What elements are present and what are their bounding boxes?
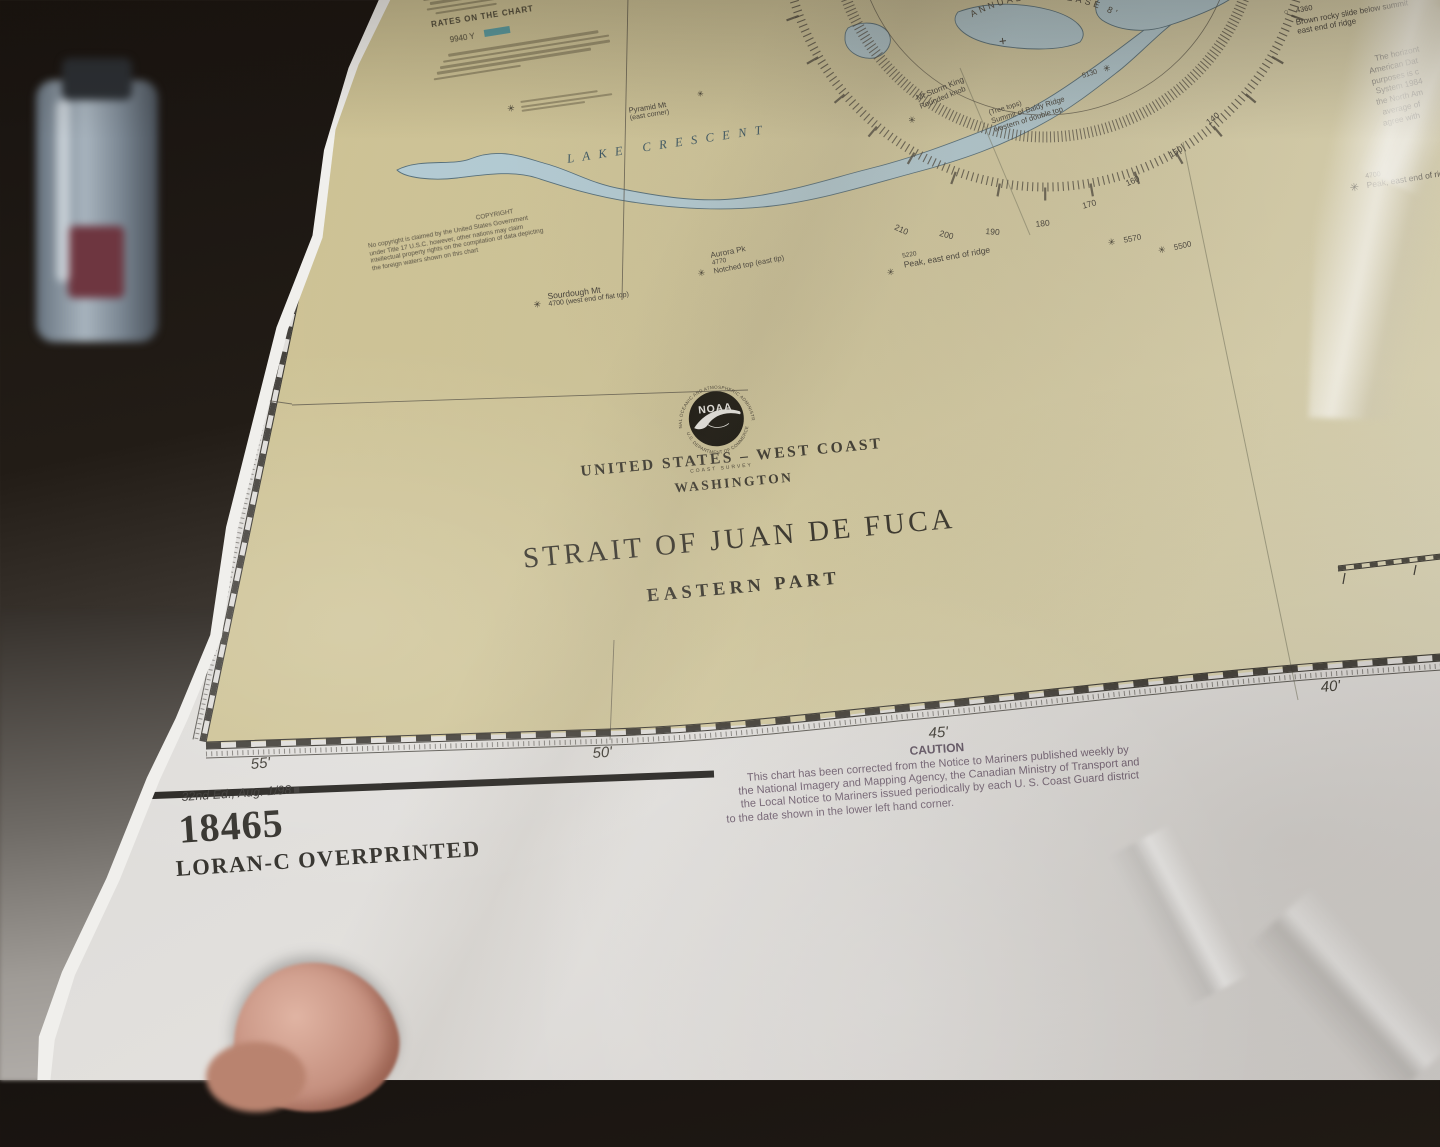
- loran-lattice-line-2: [1183, 142, 1298, 700]
- open-peak-icon: ○: [1283, 7, 1289, 17]
- compass-number: 180: [1035, 218, 1050, 229]
- peak-icon: ✳: [507, 103, 516, 115]
- meridian-50-lower: [610, 640, 614, 740]
- peak-icon: ✳: [1157, 244, 1167, 255]
- bottle-label-red: [68, 226, 124, 298]
- compass-number: 190: [985, 226, 1000, 237]
- peak-elevation: 4360: [1295, 3, 1313, 15]
- peak-icon: ✳: [533, 299, 542, 311]
- lon-label-40: 40': [1320, 677, 1341, 696]
- chart-paper: ANNUAL DECREASE 8' LA: [0, 0, 1440, 1080]
- scale-frag-stub2: [1414, 565, 1416, 575]
- left-neatline-inner2: [200, 0, 356, 741]
- heavy-outer-border: [86, 774, 714, 798]
- bottom-neatline-checks: [206, 658, 1440, 746]
- peak-icon: ✳: [697, 267, 707, 279]
- right-scale-fragment: [1338, 554, 1440, 584]
- photo-of-nautical-chart: { "chart": { "number": "18465", "overpri…: [0, 0, 1440, 1080]
- scale-frag-stub1: [1343, 573, 1345, 584]
- bottle-body: [36, 80, 158, 342]
- pond-shape: [845, 23, 890, 58]
- legend-rate-color-chip: [483, 26, 510, 37]
- edition-corner-mark: ■: [293, 784, 300, 796]
- lon-label-50: 50': [592, 744, 613, 762]
- left-neatline-checks: [203, 0, 359, 742]
- peak-icon: ✳: [886, 267, 895, 279]
- bottom-neatline: [206, 654, 1440, 758]
- thumb-knuckle: [206, 1042, 306, 1112]
- lon-label-55: 55': [250, 754, 271, 773]
- bottle-cap: [62, 58, 132, 100]
- peak-icon: ✳: [1107, 236, 1116, 247]
- peak-elevation: 5570: [1123, 232, 1142, 244]
- peak-icon: ✳: [1349, 180, 1360, 194]
- scale-frag-checks: [1338, 557, 1440, 569]
- peak-icon: ✳: [696, 89, 704, 99]
- chart-number: 18465: [177, 799, 285, 853]
- bottle-shine: [56, 100, 70, 282]
- legend-rate-value: 9940 Y: [449, 32, 475, 45]
- peak-elevation: 5500: [1173, 239, 1192, 252]
- blurry-bottle-background: [6, 58, 196, 388]
- bottom-neatline-outer: [206, 670, 1440, 758]
- lon-label-45: 45': [928, 724, 949, 742]
